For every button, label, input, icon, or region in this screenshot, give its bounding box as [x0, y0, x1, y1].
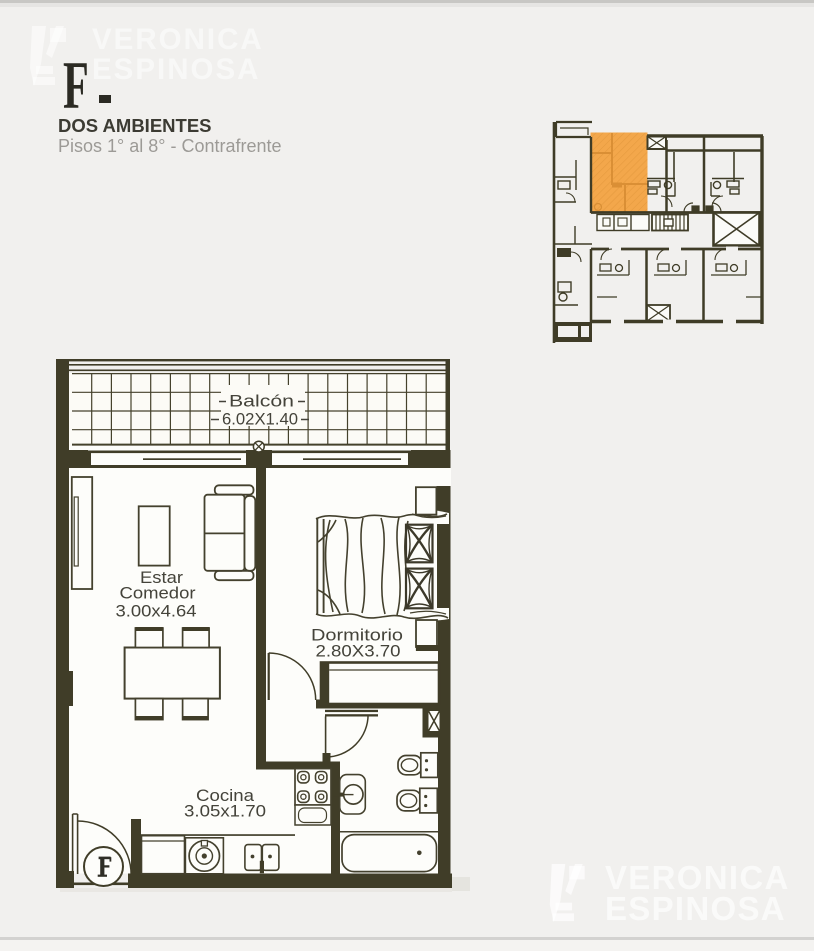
svg-text:6.02X1.40: 6.02X1.40 — [222, 410, 298, 429]
svg-text:Comedor: Comedor — [120, 584, 196, 603]
svg-text:Balcón: Balcón — [229, 392, 294, 411]
svg-text:3.05x1.70: 3.05x1.70 — [184, 802, 266, 821]
svg-text:3.00x4.64: 3.00x4.64 — [116, 602, 197, 621]
svg-text:2.80X3.70: 2.80X3.70 — [316, 642, 401, 661]
